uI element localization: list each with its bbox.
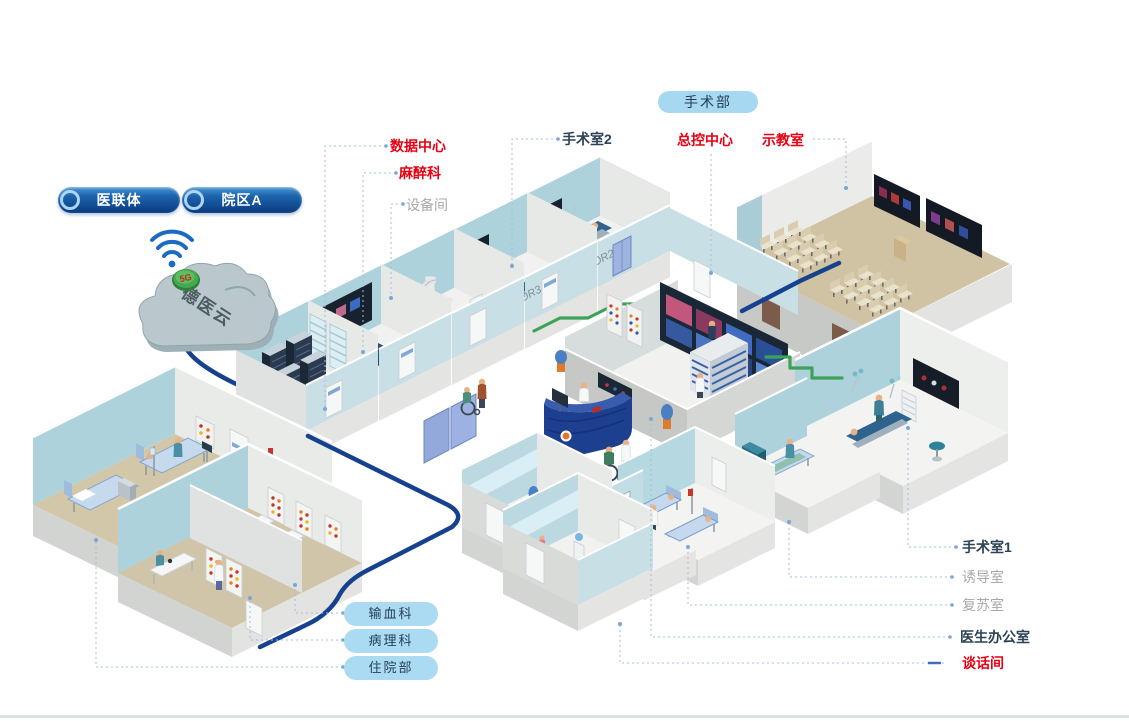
wifi-icon [152,232,192,268]
callout-equipment-room: 设备间 [406,196,448,214]
network-pill-campus-a[interactable]: 院区A [182,187,302,213]
pill-pathology[interactable]: 病理科 [344,629,438,653]
callout-data-center: 数据中心 [390,137,446,155]
department-pill-surgery[interactable]: 手术部 [658,91,758,113]
nurse [174,438,183,457]
bottom-divider [0,715,1129,718]
hospital-logo [563,433,570,440]
network-pill-alliance[interactable]: 医联体 [58,187,180,213]
pill-blood-transfusion[interactable]: 输血科 [344,602,438,626]
patient-head [851,429,858,436]
callout-demo-classroom: 示教室 [762,131,804,149]
callout-operating-room-2: 手术室2 [562,130,612,148]
callout-doctors-office: 医生办公室 [960,628,1030,646]
isometric-scene: OR2 OR3 [0,0,1129,721]
double-sliding-door [424,394,476,463]
seated-lab-tech [156,550,164,566]
callout-operating-room-1: 手术室1 [962,538,1012,556]
callout-recovery-room: 复苏室 [962,596,1004,614]
pill-inpatient-department[interactable]: 住院部 [344,656,438,680]
callout-anesthesiology: 麻醉科 [399,164,441,182]
nurse [786,439,795,458]
callout-master-control-center: 总控中心 [677,131,733,149]
5g-badge: 5G [172,269,200,291]
callout-interview-room: 谈话间 [962,654,1004,672]
hospital-isometric-diagram: OR2 OR3 [0,0,1129,721]
callout-induction-room: 诱导室 [962,568,1004,586]
medical-cloud: 德医云 5G [139,263,279,352]
